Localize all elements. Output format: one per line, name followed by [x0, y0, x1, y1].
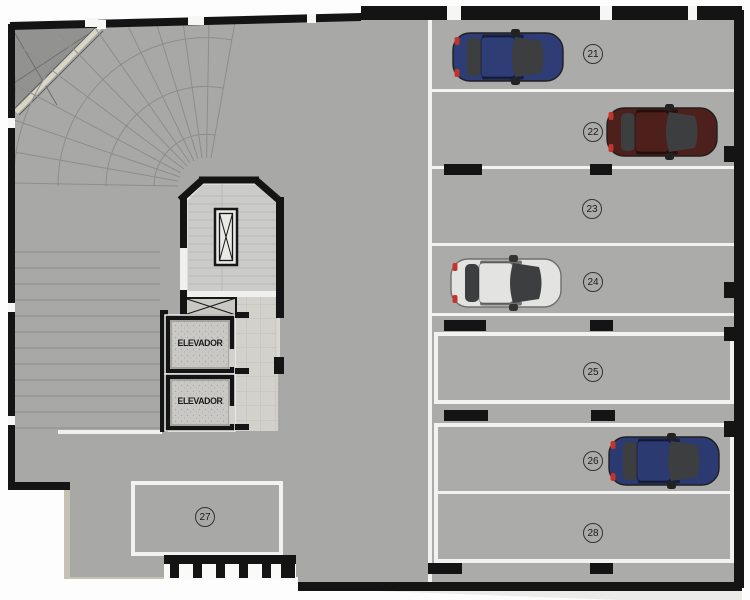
- car-space-26: [609, 433, 719, 489]
- floor-plan: 21 22 23 24 25 26 27 28 ELEVADOR ELEVADO…: [0, 0, 750, 600]
- elevator-1-door: [229, 349, 235, 367]
- space-badge-26: 26: [583, 451, 603, 471]
- space-badge-22: 22: [583, 122, 603, 142]
- space-badge-27: 27: [195, 507, 215, 527]
- car-space-21: [453, 29, 563, 85]
- car-space-22: [607, 104, 717, 160]
- elevator-1-label: ELEVADOR: [171, 338, 230, 349]
- space-badge-25: 25: [583, 362, 603, 382]
- ramp-end-line: [58, 430, 162, 434]
- space-badge-23: 23: [582, 199, 602, 219]
- stairwell: [184, 183, 280, 315]
- elevator-2-door: [229, 406, 235, 424]
- floor-plan-drawing: [0, 0, 750, 600]
- entry-steps: [164, 555, 296, 580]
- space-badge-21: 21: [583, 44, 603, 64]
- car-space-24: [451, 255, 561, 311]
- space-badge-24: 24: [583, 272, 603, 292]
- elevator-2-label: ELEVADOR: [171, 396, 230, 407]
- space-badge-28: 28: [583, 523, 603, 543]
